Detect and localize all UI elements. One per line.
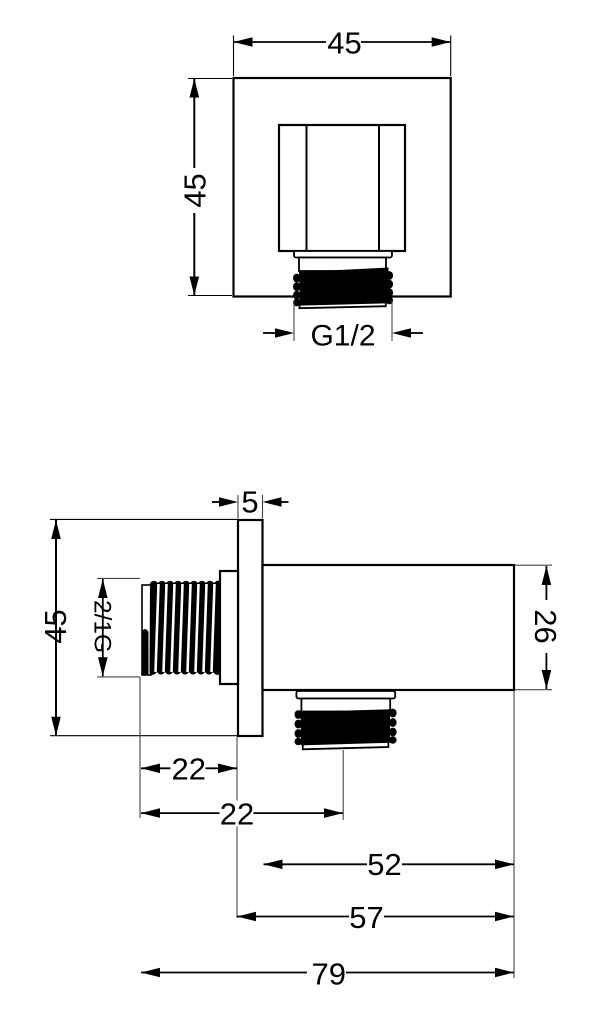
svg-text:45: 45: [38, 609, 73, 643]
svg-text:45: 45: [178, 173, 213, 207]
svg-text:G1/2: G1/2: [310, 319, 375, 352]
svg-text:45: 45: [327, 25, 361, 60]
svg-text:79: 79: [312, 956, 346, 991]
svg-text:57: 57: [349, 900, 383, 935]
svg-text:22: 22: [171, 752, 205, 787]
svg-text:52: 52: [367, 847, 401, 882]
svg-text:26: 26: [528, 609, 563, 643]
svg-text:2/1G: 2/1G: [89, 600, 116, 653]
svg-text:5: 5: [241, 484, 258, 519]
svg-text:22: 22: [220, 796, 254, 831]
